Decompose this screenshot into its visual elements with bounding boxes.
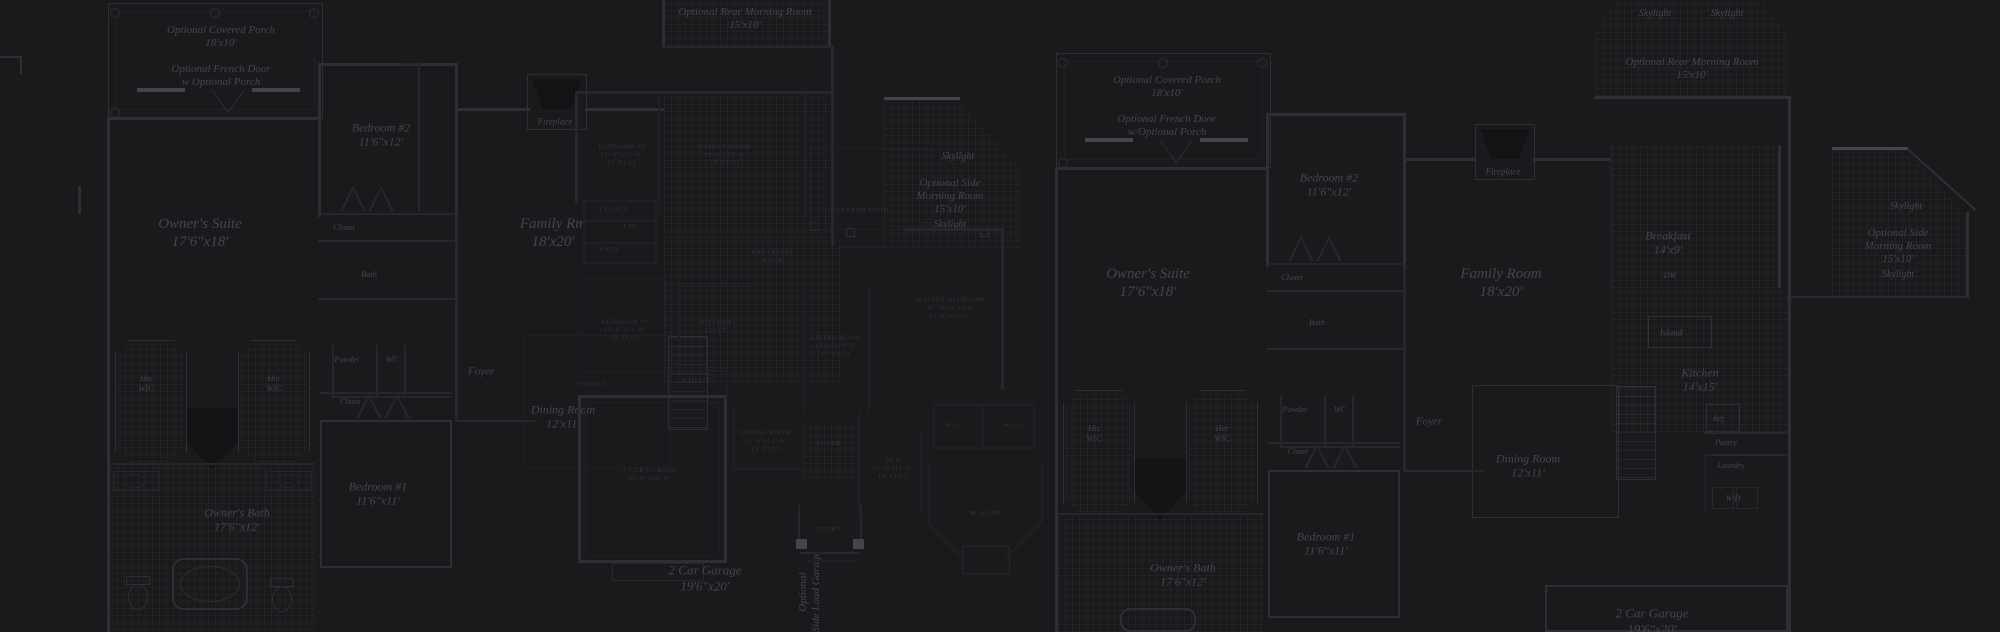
room-label-line: Island [1660,328,1683,339]
room-label-line: Breakfast [1645,229,1691,243]
laundry-label: Laundry [1717,461,1744,471]
powder-label: Powder [1283,405,1308,415]
wall-shape [1268,442,1400,444]
wall-shape [1266,263,1406,265]
house-wall-top [1055,167,1268,170]
room-label-line: 19'6"x20' [1616,621,1689,632]
room-label-line: Bedroom #1 [1297,530,1356,544]
room-label-line: Owner's Suite [1106,265,1190,283]
optional-covered-porch: Optional Covered Porch18'x10' [1113,74,1221,100]
wall-shape [1324,395,1326,448]
breakfast-floor [1612,145,1778,288]
bedroom2-label: Bedroom #211'6"x12' [1300,171,1359,200]
wall-shape [1533,158,1610,161]
room-label-line: Optional Covered Porch [1113,74,1221,87]
room-label-line: Skylight [1882,269,1914,281]
stairs [1616,386,1656,480]
wall-shape [1832,147,1908,150]
wall-shape [1403,470,1483,472]
wall-shape [1266,290,1406,292]
bedroom2-wall [1266,113,1269,267]
room-label-line: 14'x15' [1681,380,1718,394]
washer-dryer-label: W/D [1726,494,1741,504]
wc-label: WC [1334,405,1346,415]
rear-morning-room-label: Optional Rear Morning Room15'x10' [1626,56,1759,82]
room-label-line: His [1086,423,1102,433]
wall-shape [1778,145,1781,288]
bath-label: Bath [1309,317,1325,327]
foyer-wall [1403,267,1406,470]
dishwasher-label: DW [1664,271,1676,281]
wall-shape [1594,96,1790,99]
bedroom2-wall [1266,113,1406,116]
room-label-line: W/D [1726,494,1741,504]
wall-shape [1266,348,1406,350]
room-label-line: Foyer [1416,415,1442,428]
plan-a-right: SkylightSkylightOptional Rear Morning Ro… [0,0,2000,632]
garage-label: 2 Car Garage19'6"x20' [1616,605,1689,632]
room-label-line: Closet [1288,447,1308,457]
side-morning-room-label: Optional SideMorning Room15'x10' [1865,227,1932,267]
room-label-line: 15'x10' [1865,254,1932,267]
owners-suite-label: Owner's Suite17'6"x18' [1106,265,1190,301]
closet-door [1288,236,1314,261]
room-label-line: Skylight [1639,8,1671,20]
wall-shape [1280,395,1282,448]
kitchen-label: Kitchen14'x15' [1681,366,1718,395]
skylight-label: Skylight [1890,201,1922,213]
room-label-line: 17'6"x12' [1150,575,1216,589]
room-label-line: DW [1664,271,1676,281]
pantry-label: Pantry [1715,438,1737,448]
room-label-line: Skylight [1890,201,1922,213]
room-label-line: Owner's Bath [1150,561,1216,575]
closet-door [1316,236,1342,261]
room-label-line: Optional French Door [1117,113,1216,126]
closet-label: Closet [1281,272,1303,282]
room-label-line: Bedroom #2 [1300,171,1359,185]
dressing-nook [1135,458,1186,520]
ref-label: Ref. [1713,414,1726,424]
wall-shape [1406,158,1476,161]
wall-shape [1704,454,1788,456]
room-label-line: 17'6"x18' [1106,283,1190,301]
breakfast-label: Breakfast14'x9' [1645,229,1691,258]
room-label-line: Morning Room [1865,240,1932,253]
room-label-line: 11'6"x12' [1300,185,1359,199]
room-label-line: Skylight [1711,8,1743,20]
room-label-line: Ref. [1713,414,1726,424]
wall-shape [1966,212,1969,298]
bedroom2-wall [1403,113,1406,267]
room-label-line: WIC [1214,433,1230,443]
room-label-line: Dining Room [1496,452,1560,466]
room-label-line: WIC [1086,433,1102,443]
wall-shape [1058,513,1263,515]
wall-shape [1790,296,1968,298]
skylight-label: Skylight [1882,269,1914,281]
island-label: Island [1660,328,1683,339]
skylight-label: Skylight [1711,8,1743,20]
room-label-line: Closet [1281,272,1303,282]
wall-shape [1704,432,1788,434]
room-label-line: Optional Side [1865,227,1932,240]
dining-room-label: Dining Room12'x11' [1496,452,1560,481]
room-label-line: 14'x9' [1645,243,1691,257]
fireplace-label: Fireplace [1486,167,1521,178]
porch-post [1058,58,1068,68]
room-label-line: 15'x10' [1626,69,1759,82]
skylight-label: Skylight [1639,8,1671,20]
foyer-label: Foyer [1416,415,1442,428]
floorplan-collage-background: Optional Covered Porch18'x10'Optional Fr… [0,0,2000,632]
room-label-line: 12'x11' [1496,466,1560,480]
bedroom1-label: Bedroom #111'6"x11' [1297,530,1356,559]
room-label-line: Kitchen [1681,366,1718,380]
wall-shape [1352,395,1354,448]
room-label-line: 18'x10' [1113,87,1221,100]
room-label-line: Family Room [1460,265,1541,283]
room-label-line: 2 Car Garage [1616,605,1689,621]
room-label-line: Her [1214,423,1230,433]
room-label-line: Pantry [1715,438,1737,448]
his-wic-label: HisWIC [1086,423,1102,443]
closet-label: Closet [1288,447,1308,457]
house-wall-right [1788,96,1791,632]
her-wic-label: HerWIC [1214,423,1230,443]
porch-post [1257,58,1267,68]
room-label-line: 18'x20' [1460,283,1541,301]
family-room-label: Family Room18'x20' [1460,265,1541,301]
wall-shape [1704,454,1706,512]
room-label-line: w/Optional Porch [1117,126,1216,139]
room-label-line: 11'6"x11' [1297,544,1356,558]
optional-french-door: Optional French Doorw/Optional Porch [1117,113,1216,139]
tub [1120,608,1196,632]
room-label-line: Fireplace [1486,167,1521,178]
room-label-line: Bath [1309,317,1325,327]
porch-post [1158,58,1168,68]
owners-bath-label: Owner's Bath17'6"x12' [1150,561,1216,590]
grid-shape [1189,393,1255,512]
room-label-line: Optional Rear Morning Room [1626,56,1759,69]
room-label-line: WC [1334,405,1346,415]
grid-shape [1066,393,1132,512]
room-label-line: Powder [1283,405,1308,415]
room-label-line: Laundry [1717,461,1744,471]
wall-shape [1610,145,1612,288]
